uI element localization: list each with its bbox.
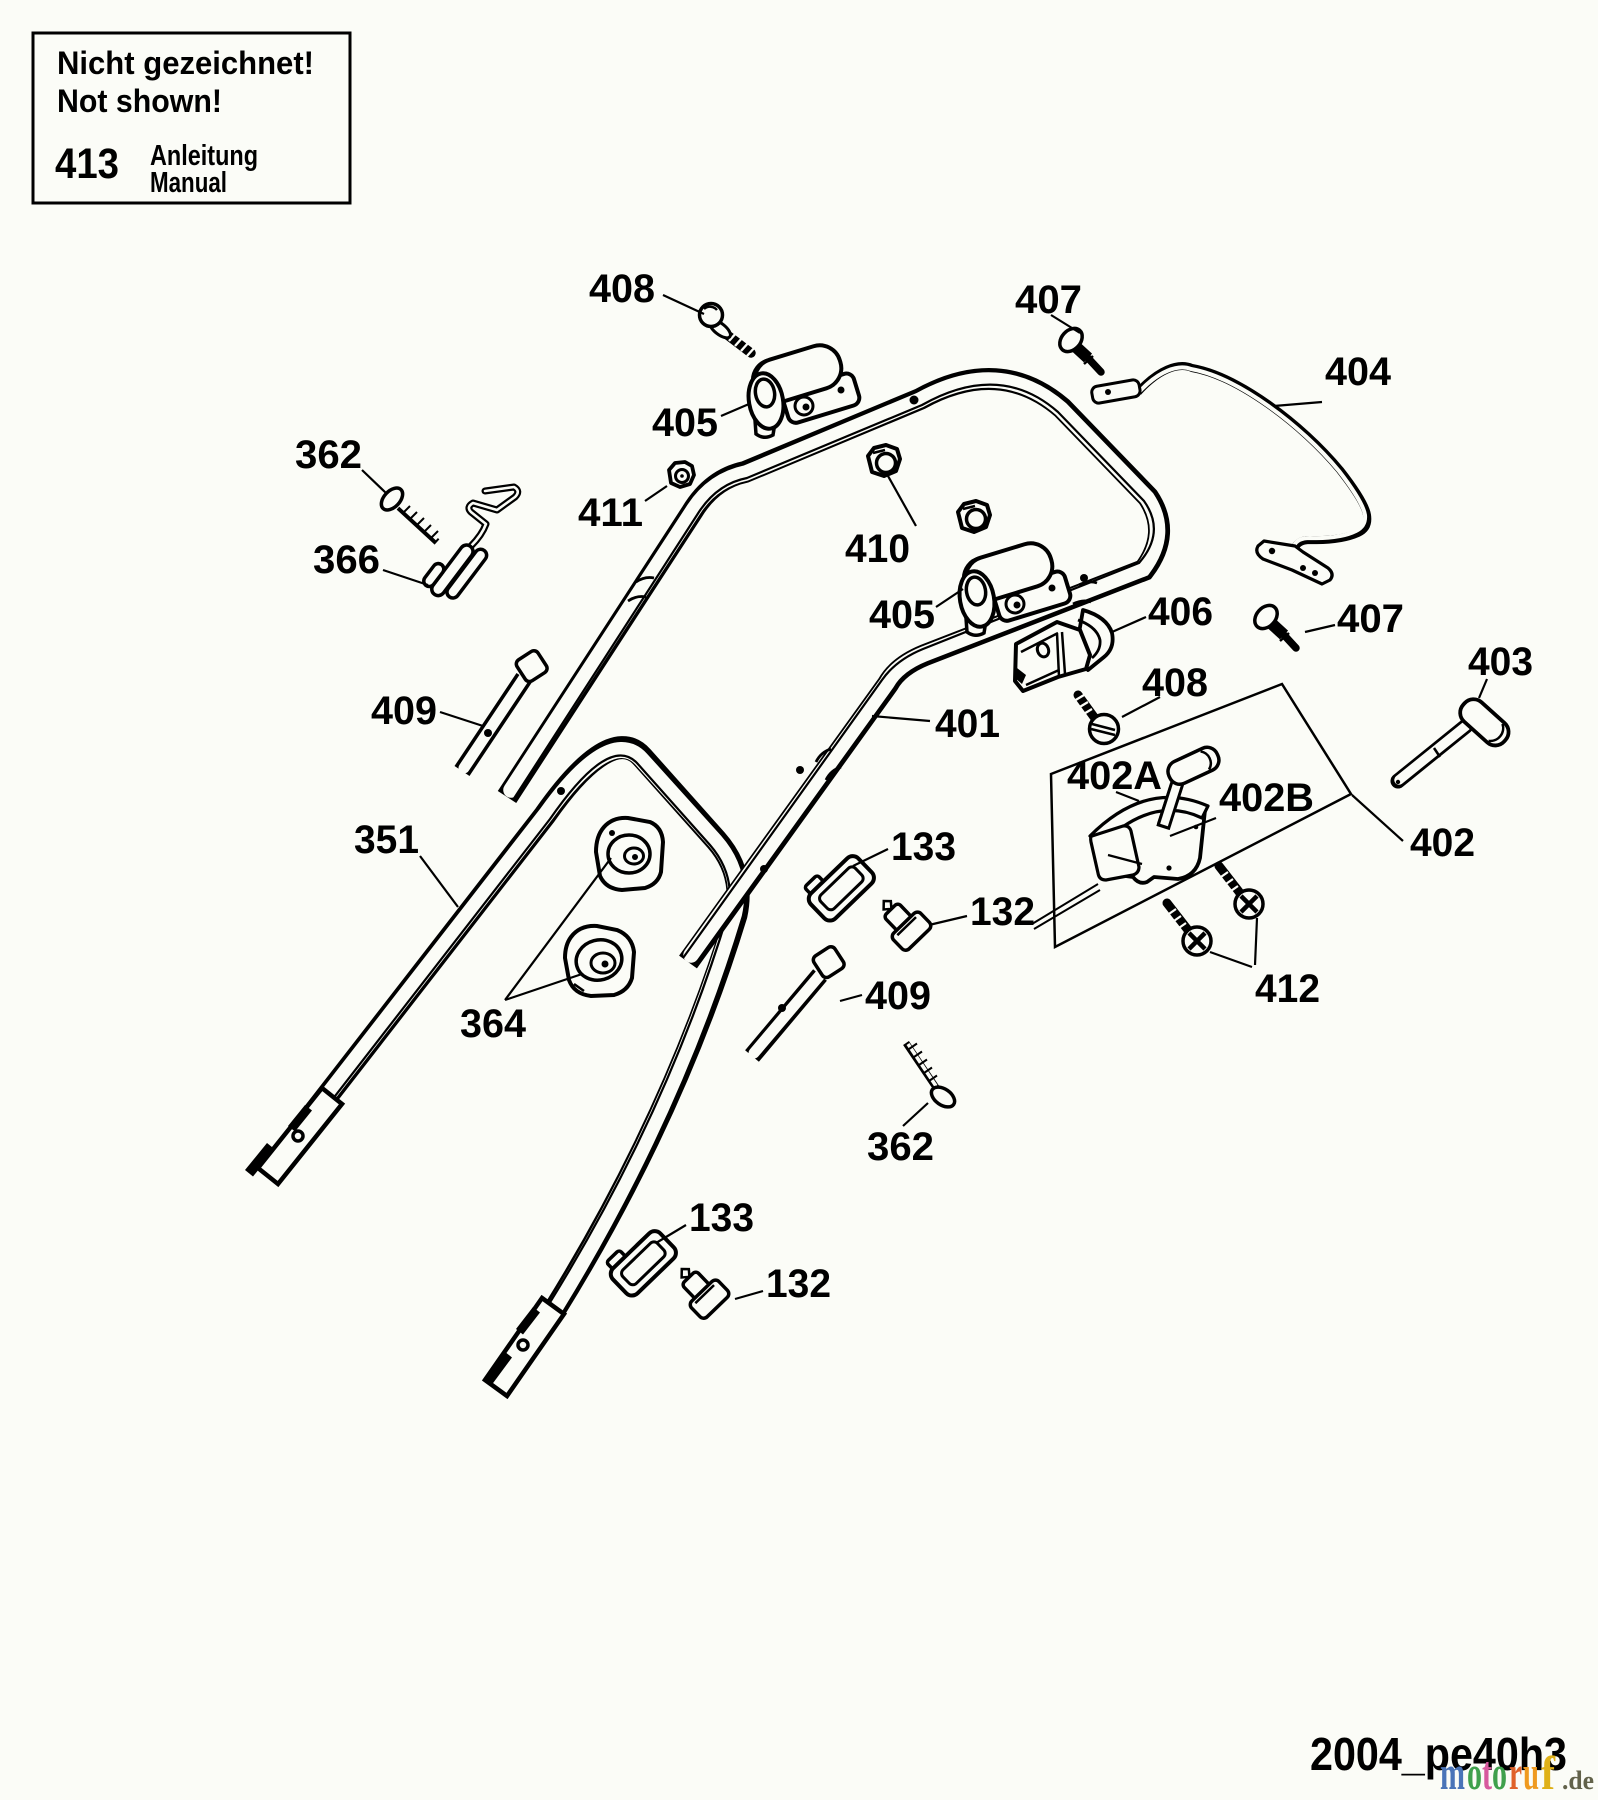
svg-text:m: m (1440, 1747, 1465, 1800)
svg-text:132: 132 (970, 890, 1035, 934)
svg-text:362: 362 (867, 1125, 934, 1169)
svg-text:401: 401 (935, 702, 1000, 746)
svg-text:351: 351 (354, 818, 419, 862)
svg-text:402: 402 (1410, 821, 1475, 865)
svg-text:r: r (1509, 1747, 1522, 1800)
svg-text:Not shown!: Not shown! (57, 83, 222, 119)
svg-text:Nicht gezeichnet!: Nicht gezeichnet! (57, 45, 314, 81)
svg-text:408: 408 (1142, 661, 1208, 705)
svg-text:.de: .de (1562, 1766, 1594, 1795)
svg-text:366: 366 (313, 538, 380, 582)
svg-text:133: 133 (689, 1196, 754, 1240)
svg-text:f: f (1541, 1747, 1556, 1800)
svg-text:364: 364 (460, 1002, 527, 1046)
svg-text:410: 410 (845, 527, 910, 571)
svg-text:403: 403 (1468, 640, 1533, 684)
svg-text:407: 407 (1015, 278, 1082, 322)
svg-text:406: 406 (1148, 590, 1213, 634)
svg-text:o: o (1467, 1747, 1482, 1800)
svg-text:404: 404 (1325, 350, 1392, 394)
svg-text:402B: 402B (1219, 776, 1314, 820)
svg-text:133: 133 (891, 825, 956, 869)
svg-text:411: 411 (578, 491, 643, 535)
svg-text:405: 405 (652, 401, 718, 445)
svg-text:412: 412 (1255, 967, 1320, 1011)
svg-text:413: 413 (55, 140, 119, 188)
svg-text:409: 409 (865, 974, 931, 1018)
svg-text:408: 408 (589, 267, 655, 311)
svg-text:405: 405 (869, 593, 935, 637)
svg-text:407: 407 (1337, 597, 1404, 641)
svg-text:o: o (1492, 1747, 1507, 1800)
svg-text:u: u (1523, 1747, 1539, 1800)
svg-text:402A: 402A (1067, 754, 1162, 798)
svg-text:362: 362 (295, 433, 362, 477)
svg-text:Manual: Manual (150, 167, 227, 199)
svg-text:409: 409 (371, 689, 437, 733)
svg-text:t: t (1482, 1747, 1492, 1800)
svg-text:132: 132 (766, 1262, 831, 1306)
